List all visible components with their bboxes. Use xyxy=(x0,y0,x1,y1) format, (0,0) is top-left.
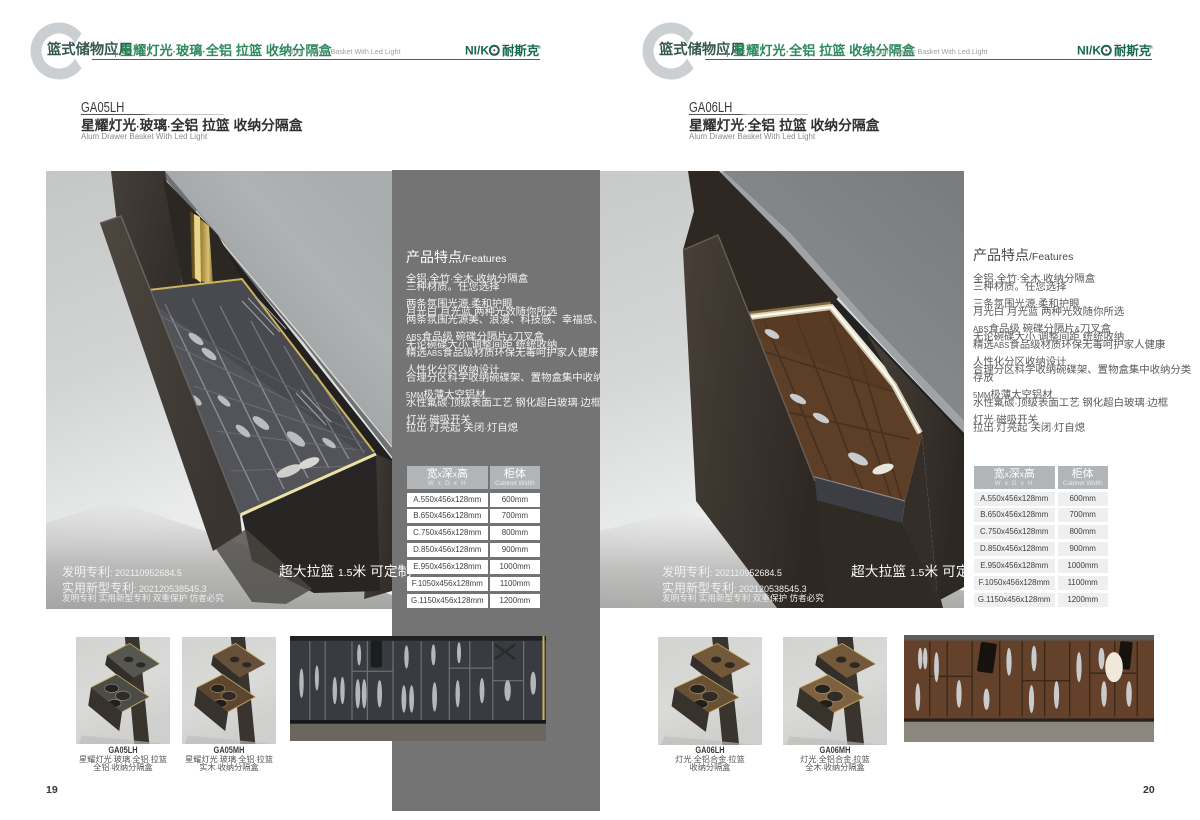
svg-text:耐斯克: 耐斯克 xyxy=(1114,44,1152,57)
svg-text:NI/K: NI/K xyxy=(1077,44,1101,57)
svg-text:®: ® xyxy=(538,44,542,50)
svg-text:耐斯克: 耐斯克 xyxy=(502,44,540,57)
svg-text:NI/K: NI/K xyxy=(465,44,489,57)
svg-text:®: ® xyxy=(1150,44,1154,50)
